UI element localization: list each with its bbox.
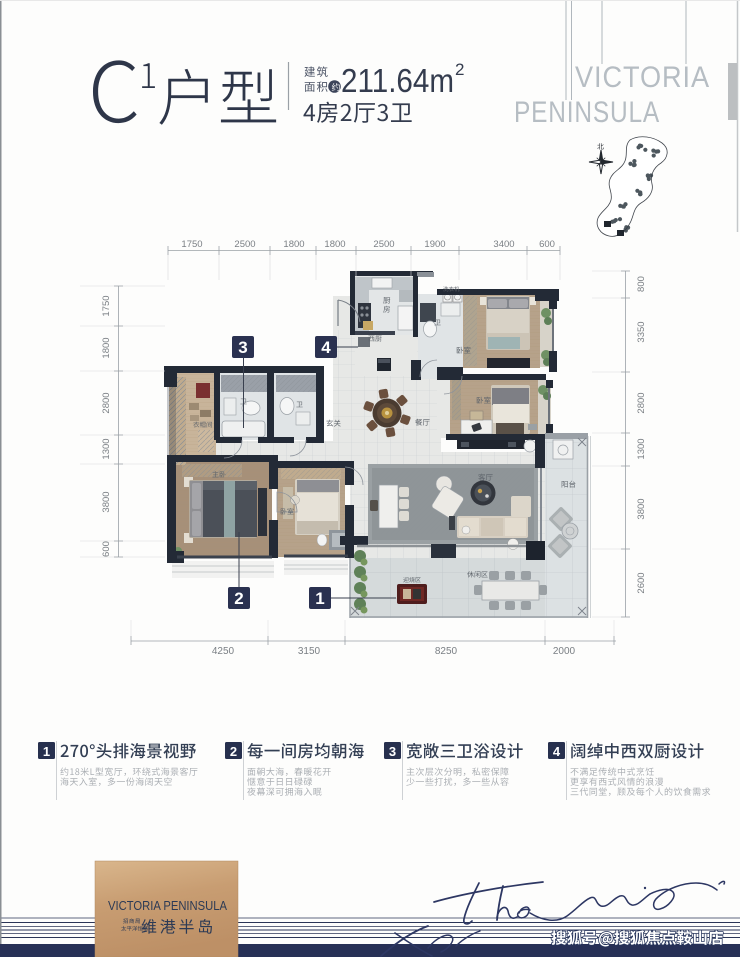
svg-text:1800: 1800 (324, 239, 345, 250)
svg-text:4250: 4250 (212, 646, 235, 657)
svg-text:1300: 1300 (101, 438, 112, 459)
svg-text:2800: 2800 (101, 392, 112, 413)
svg-text:PENINSULA: PENINSULA (514, 96, 660, 129)
svg-text:1800: 1800 (101, 337, 112, 358)
svg-text:211.64m: 211.64m (341, 62, 454, 99)
svg-text:3800: 3800 (101, 491, 112, 512)
svg-text:VICTORIA PENINSULA: VICTORIA PENINSULA (108, 898, 227, 913)
svg-text:1750: 1750 (101, 295, 112, 316)
svg-text:VICTORIA: VICTORIA (575, 61, 710, 94)
svg-text:3400: 3400 (493, 239, 514, 250)
svg-text:2600: 2600 (636, 572, 647, 593)
svg-text:4: 4 (321, 338, 331, 357)
svg-text:3150: 3150 (298, 646, 321, 657)
svg-text:2500: 2500 (373, 239, 394, 250)
svg-text:2800: 2800 (636, 392, 647, 413)
svg-text:8250: 8250 (435, 646, 458, 657)
svg-text:2: 2 (230, 744, 237, 759)
svg-text:2500: 2500 (234, 239, 255, 250)
svg-text:3350: 3350 (636, 321, 647, 342)
svg-text:1: 1 (43, 744, 50, 759)
svg-text:600: 600 (101, 541, 112, 557)
svg-text:1800: 1800 (283, 239, 304, 250)
svg-text:1900: 1900 (424, 239, 445, 250)
svg-text:3: 3 (238, 338, 247, 357)
svg-text:600: 600 (539, 239, 555, 250)
svg-text:2: 2 (234, 589, 243, 608)
svg-text:800: 800 (636, 276, 647, 292)
svg-text:3800: 3800 (636, 498, 647, 519)
svg-text:4: 4 (553, 744, 561, 759)
svg-text:1750: 1750 (181, 239, 202, 250)
svg-text:2: 2 (455, 60, 464, 79)
svg-text:2000: 2000 (553, 646, 576, 657)
svg-text:1300: 1300 (636, 438, 647, 459)
svg-text:3: 3 (389, 744, 396, 759)
svg-text:1: 1 (315, 589, 324, 608)
